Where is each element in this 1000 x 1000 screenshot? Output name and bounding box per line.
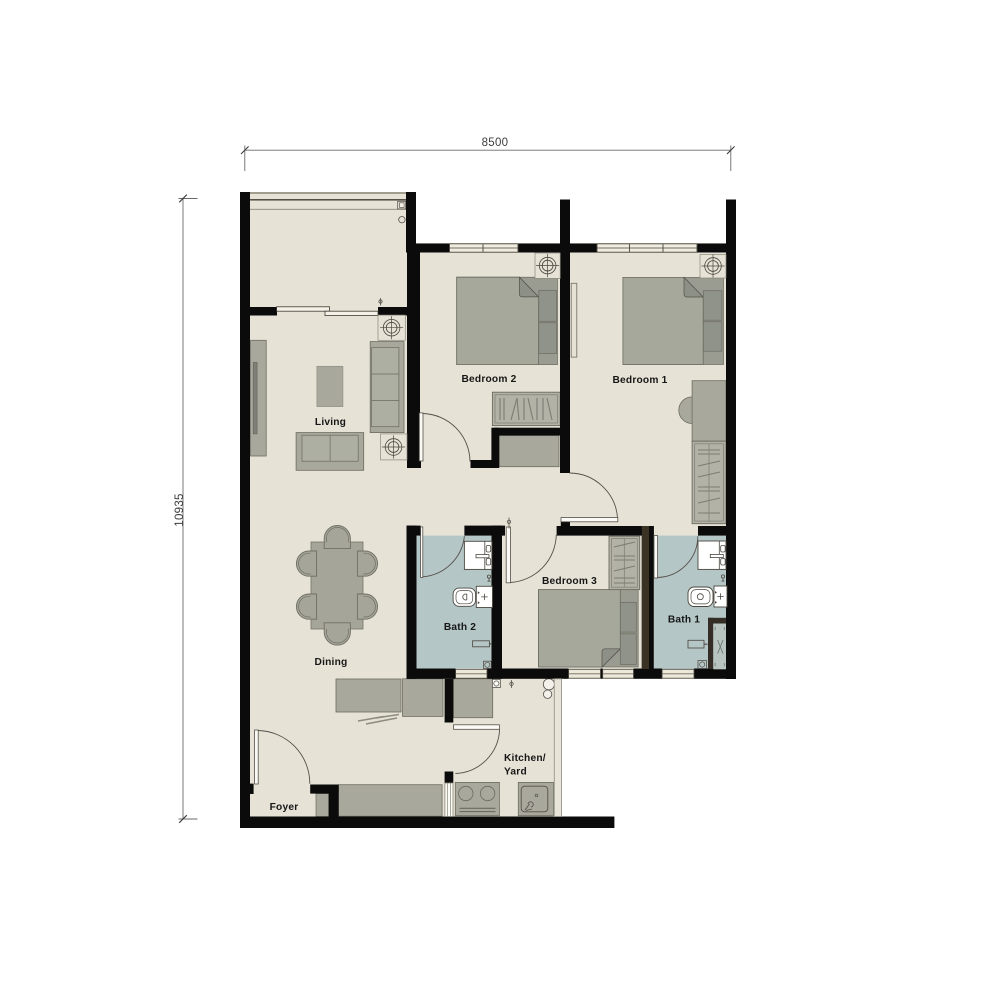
svg-text:Living: Living (315, 417, 346, 428)
svg-text:Bedroom 1: Bedroom 1 (612, 375, 667, 386)
svg-text:Yard: Yard (504, 767, 527, 778)
svg-text:10935: 10935 (174, 493, 186, 526)
svg-text:Bedroom 3: Bedroom 3 (542, 576, 597, 587)
svg-text:Dining: Dining (315, 657, 348, 668)
svg-text:Bath 2: Bath 2 (444, 622, 476, 633)
svg-text:Kitchen/: Kitchen/ (504, 753, 546, 764)
svg-text:Bath 1: Bath 1 (668, 615, 700, 626)
svg-text:Bedroom 2: Bedroom 2 (461, 374, 516, 385)
svg-text:8500: 8500 (482, 137, 509, 149)
svg-text:Foyer: Foyer (270, 802, 299, 813)
